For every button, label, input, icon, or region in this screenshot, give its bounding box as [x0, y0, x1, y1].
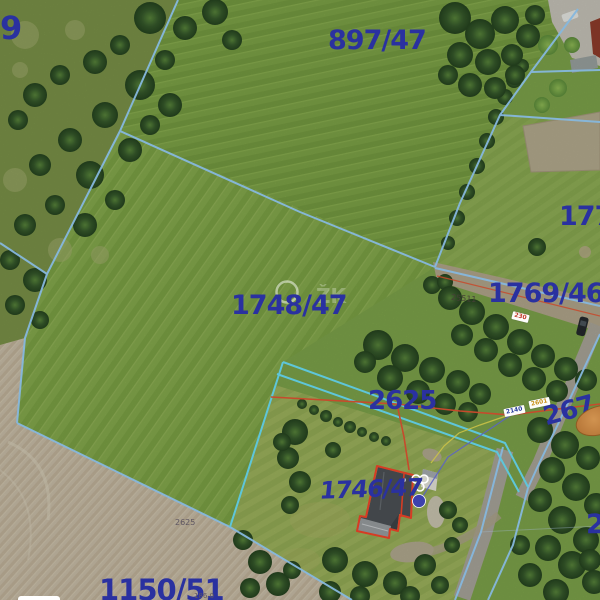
provider-logo: [18, 596, 60, 600]
parcel-label-1746-47: 1746/47: [319, 475, 424, 503]
parcel-label-2625: 2625: [368, 388, 436, 414]
parcel-label-1769-46: 1769/46: [488, 280, 600, 307]
parcel-label-1748-47: 1748/47: [231, 292, 347, 319]
parcel-label-177: 177: [559, 203, 600, 230]
parcel-label-9: 9: [0, 12, 21, 44]
parcel-label-2: 2: [586, 511, 600, 538]
parcel-label-897-47: 897/47: [328, 27, 426, 54]
small-label-2625: 2625: [175, 519, 195, 527]
small-label-186: 186.0: [194, 593, 214, 600]
map-canvas[interactable]: ŽK 9 897/47 177 1769/46 1748/47 2625 174…: [0, 0, 600, 600]
